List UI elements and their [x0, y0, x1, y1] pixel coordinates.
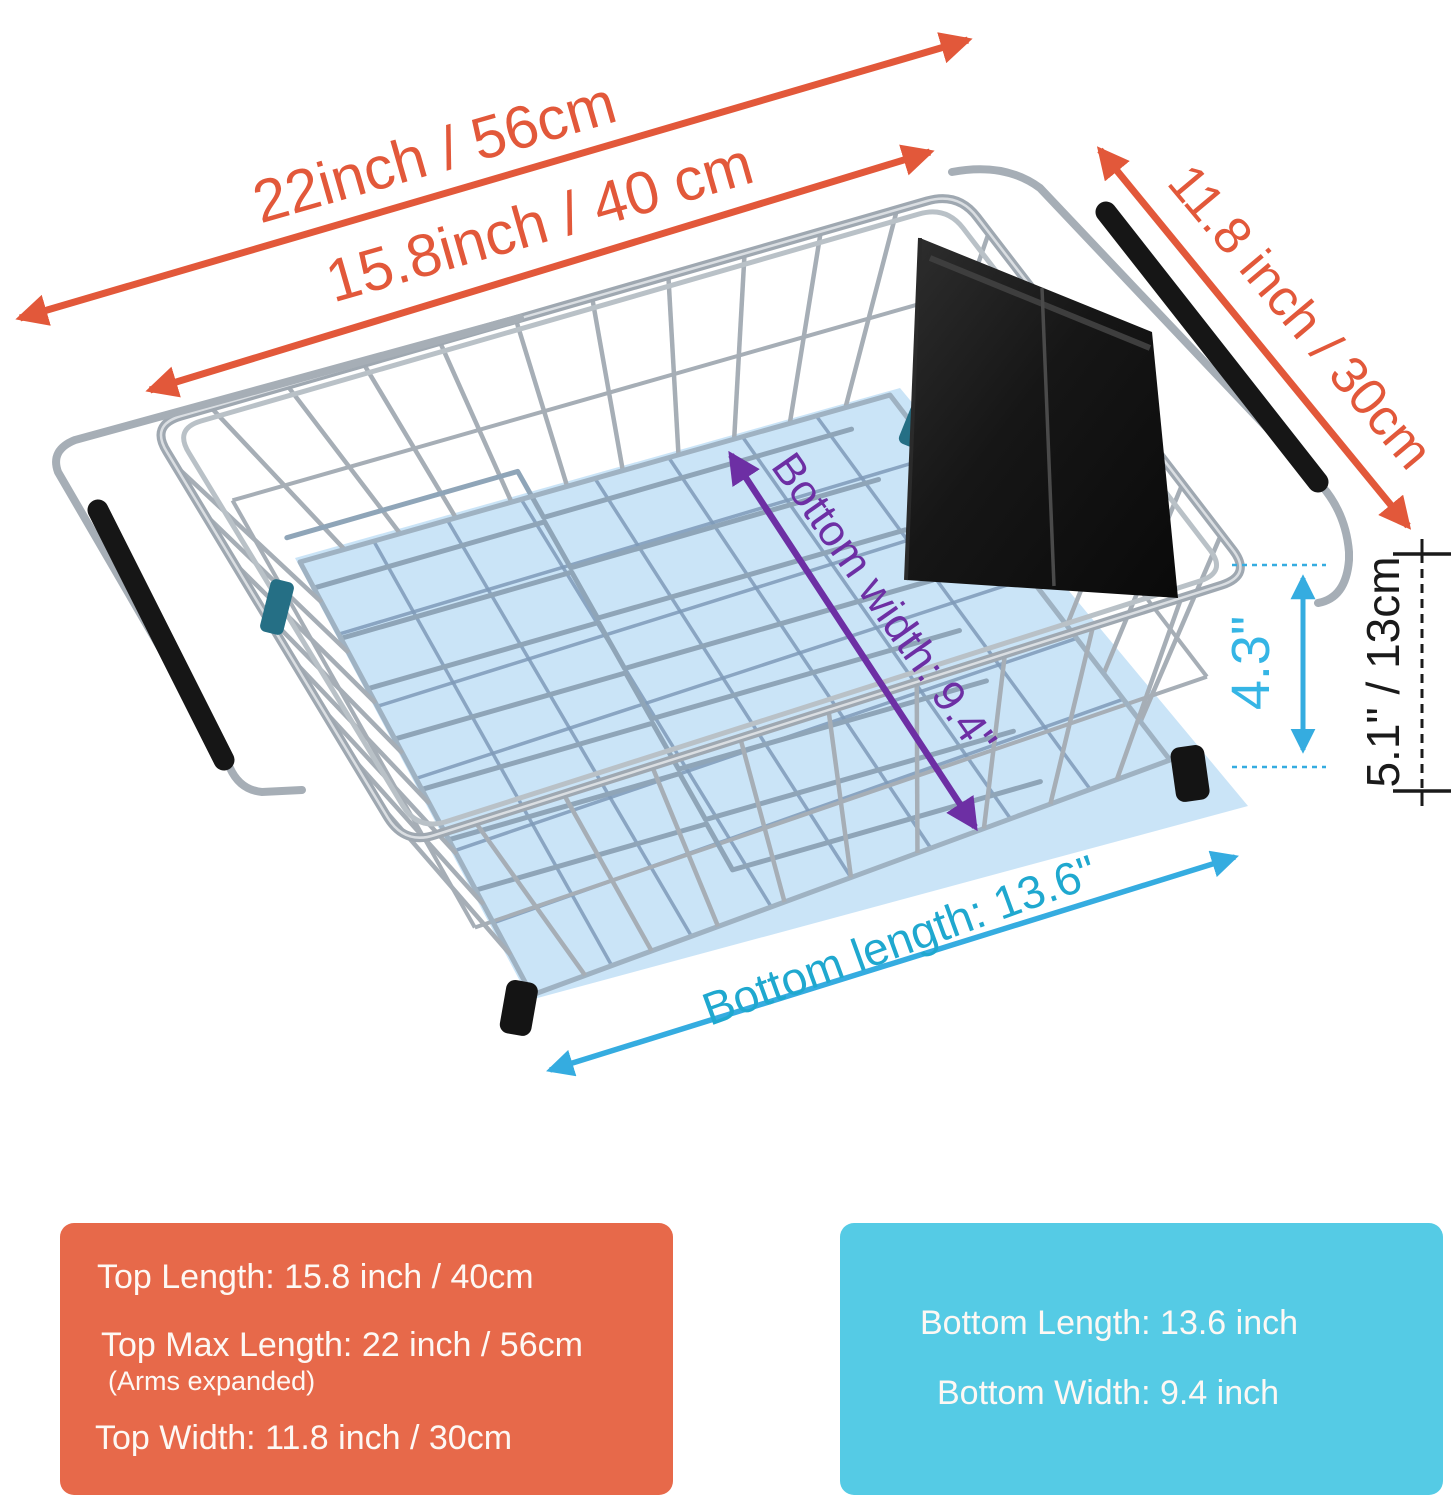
bottom-specs-box — [840, 1223, 1443, 1495]
spec-info-boxes: Top Length: 15.8 inch / 40cm Top Max Len… — [60, 1223, 1443, 1495]
arrow-top-max-length — [20, 40, 968, 318]
label-inner-height: 4.3" — [1221, 616, 1281, 710]
bottom-specs-line1: Bottom Length: 13.6 inch — [920, 1304, 1298, 1342]
wall-wire — [917, 682, 918, 853]
wall-wire — [592, 298, 623, 471]
wall-wire — [668, 276, 678, 455]
bottom-specs-line2: Bottom Width: 9.4 inch — [937, 1374, 1279, 1412]
top-specs-line3: Top Width: 11.8 inch / 30cm — [95, 1419, 512, 1457]
wall-wire — [734, 254, 744, 440]
product-dimension-diagram: 22inch / 56cm 15.8inch / 40 cm 11.8 inch… — [0, 0, 1453, 1500]
wall-wire — [516, 319, 567, 486]
left-arm-grip — [98, 510, 224, 760]
wall-wire — [790, 232, 821, 424]
label-outer-height: 5.1" / 13cm — [1357, 556, 1409, 787]
top-specs-line1: Top Length: 15.8 inch / 40cm — [97, 1258, 534, 1296]
dish-rack-diagram-canvas: 22inch / 56cm 15.8inch / 40 cm 11.8 inch… — [0, 0, 1453, 1500]
top-specs-line2: Top Max Length: 22 inch / 56cm — [101, 1326, 583, 1364]
top-specs-line2-note: (Arms expanded) — [108, 1366, 315, 1396]
rubber-foot-front — [498, 979, 539, 1038]
dish-rack-illustration — [56, 169, 1349, 1037]
wall-wire — [845, 210, 897, 408]
